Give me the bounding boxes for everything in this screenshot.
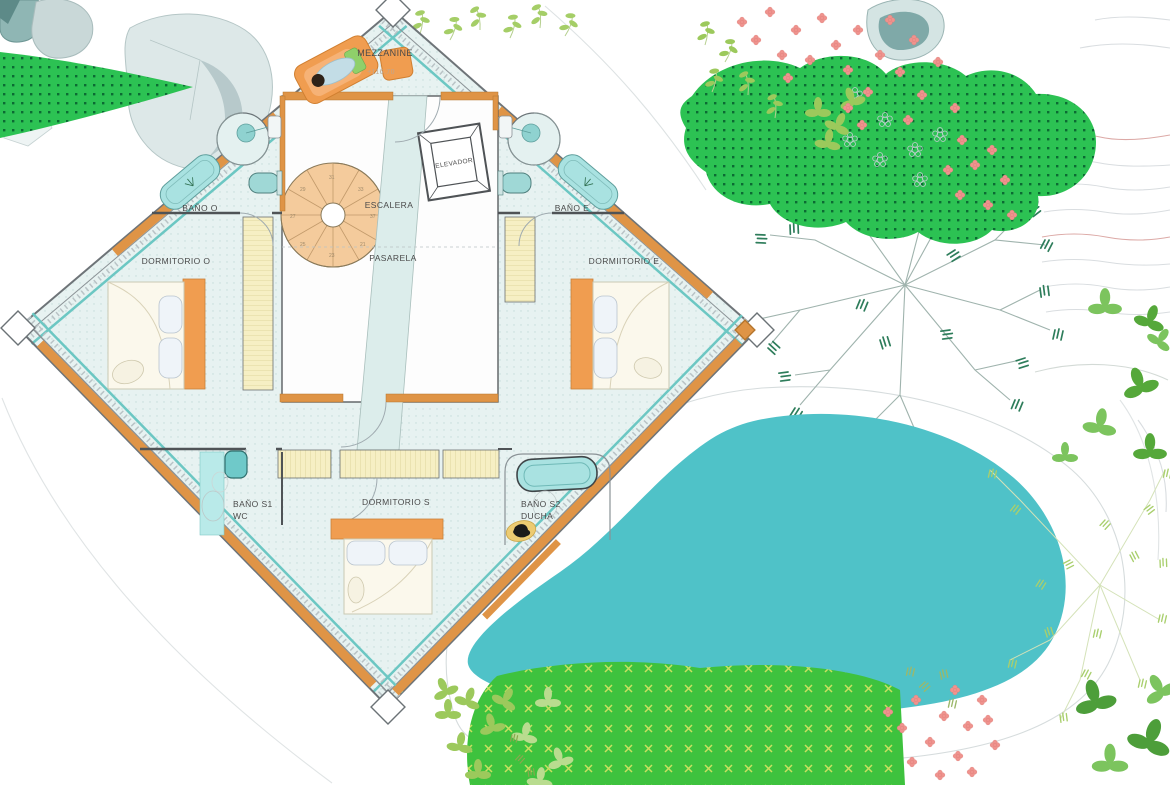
spiral-staircase: 21 23 25 27 29 31 33 37: [281, 163, 385, 267]
mezzanine-label: MEZZANINE: [357, 48, 413, 58]
svg-text:37: 37: [370, 214, 376, 220]
sink-east: [499, 116, 512, 138]
bano-e-label: BAÑO E: [555, 203, 590, 213]
toilet-east: [498, 171, 531, 195]
bano-o-label: BAÑO O: [182, 203, 217, 213]
svg-text:23: 23: [329, 253, 335, 259]
sink-west: [268, 116, 281, 138]
svg-text:27: 27: [290, 214, 296, 220]
plants-top-center: [411, 2, 581, 42]
svg-text:31: 31: [329, 175, 335, 181]
headboard: [183, 279, 205, 389]
floor-plan-drawing: 21 23 25 27 29 31 33 37 ELEVADOR: [0, 0, 1170, 785]
elevator: ELEVADOR: [418, 124, 490, 201]
svg-text:33: 33: [358, 187, 364, 193]
elevation-label: +116.70: [367, 69, 395, 76]
toilet-west: [249, 171, 282, 195]
bed-west: [108, 279, 205, 389]
dormitorio-o-label: DORMITORIO O: [142, 256, 211, 266]
dormitorio-e-label: DORMIITORIO E: [589, 256, 660, 266]
svg-text:29: 29: [300, 187, 306, 193]
monstera-corner-southeast: [1070, 667, 1170, 772]
leaves-east: [1052, 288, 1170, 462]
lawn-band-south: [467, 662, 905, 785]
escalera-label: ESCALERA: [365, 200, 414, 210]
site-plan-canvas: 21 23 25 27 29 31 33 37 ELEVADOR: [0, 0, 1170, 785]
bed-east: [571, 279, 669, 389]
dormitorio-s-label: DORMITORIO S: [362, 497, 430, 507]
bano-s1-label: BAÑO S1: [233, 499, 273, 509]
bathtub-s2: [516, 456, 598, 492]
lawn-blob-northeast: [680, 56, 1096, 244]
wc-label: WC: [233, 511, 248, 521]
bed-south: [331, 519, 443, 614]
pasarela-label: PASARELA: [369, 253, 416, 263]
ducha-label: DUCHA: [521, 511, 553, 521]
bano-s2-label: BAÑO S2: [521, 499, 561, 509]
